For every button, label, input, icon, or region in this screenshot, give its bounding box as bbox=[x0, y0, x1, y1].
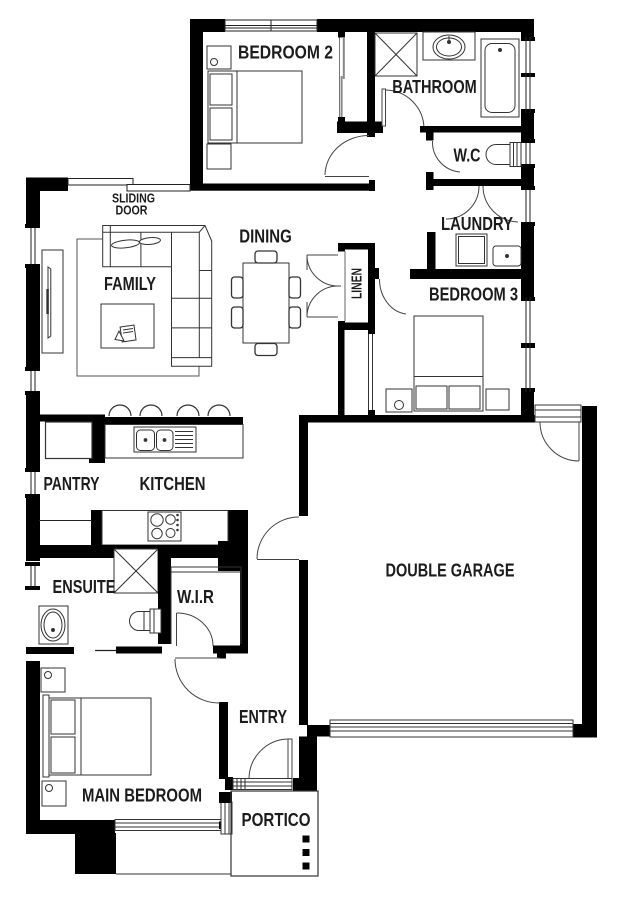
svg-text:PANTRY: PANTRY bbox=[44, 473, 100, 494]
svg-text:DOUBLE GARAGE: DOUBLE GARAGE bbox=[386, 560, 515, 581]
svg-text:DINING: DINING bbox=[239, 226, 292, 247]
svg-text:MAIN BEDROOM: MAIN BEDROOM bbox=[82, 785, 202, 806]
svg-text:DOOR: DOOR bbox=[116, 203, 149, 218]
svg-text:FAMILY: FAMILY bbox=[104, 273, 157, 294]
svg-text:LINEN: LINEN bbox=[349, 268, 366, 299]
svg-text:BEDROOM 3: BEDROOM 3 bbox=[429, 284, 518, 305]
svg-text:ENSUITE: ENSUITE bbox=[53, 576, 116, 597]
svg-text:LAUNDRY: LAUNDRY bbox=[441, 213, 514, 234]
svg-text:BEDROOM 2: BEDROOM 2 bbox=[238, 42, 333, 63]
svg-text:KITCHEN: KITCHEN bbox=[140, 473, 206, 494]
svg-text:ENTRY: ENTRY bbox=[239, 706, 288, 727]
svg-text:PORTICO: PORTICO bbox=[242, 809, 311, 830]
svg-text:W.C: W.C bbox=[454, 145, 481, 166]
svg-text:W.I.R: W.I.R bbox=[177, 586, 214, 607]
svg-text:BATHROOM: BATHROOM bbox=[392, 76, 477, 97]
